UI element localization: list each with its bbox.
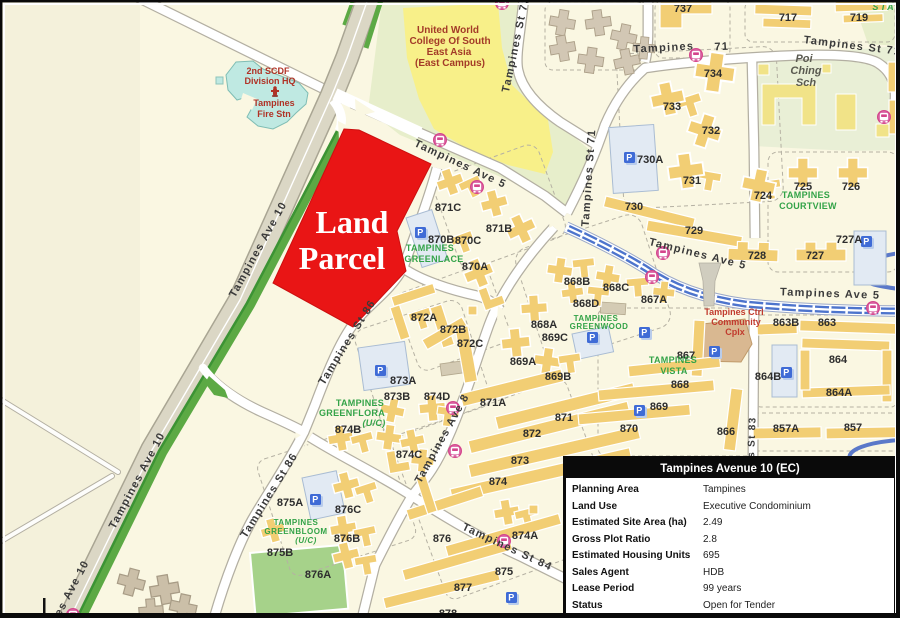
svg-text:Gross Plot Ratio: Gross Plot Ratio [572, 534, 650, 545]
svg-text:P: P [636, 406, 642, 416]
svg-text:Sch: Sch [796, 77, 816, 89]
svg-text:COURTVIEW: COURTVIEW [779, 201, 837, 211]
svg-text:Tampines Avenue 10 (EC): Tampines Avenue 10 (EC) [660, 463, 800, 475]
svg-text:874A: 874A [512, 530, 538, 542]
svg-text:(East Campus): (East Campus) [415, 58, 485, 69]
svg-text:868C: 868C [603, 282, 629, 294]
svg-text:Fire Stn: Fire Stn [257, 109, 291, 119]
svg-text:872C: 872C [457, 338, 483, 350]
svg-text:United World: United World [417, 25, 479, 36]
svg-text:876: 876 [433, 533, 451, 545]
svg-text:GREENWOOD: GREENWOOD [570, 322, 629, 331]
svg-text:P: P [312, 495, 318, 505]
svg-text:866: 866 [717, 426, 735, 438]
svg-text:P: P [641, 328, 647, 338]
svg-text:870C: 870C [455, 235, 481, 247]
svg-text:727A: 727A [836, 234, 862, 246]
svg-text:869: 869 [650, 401, 668, 413]
svg-text:TAMPINES: TAMPINES [274, 518, 319, 527]
svg-text:728: 728 [748, 250, 766, 262]
svg-text:734: 734 [704, 68, 723, 80]
svg-text:Land Use: Land Use [572, 501, 617, 512]
svg-text:869C: 869C [542, 332, 568, 344]
svg-text:P: P [589, 333, 595, 343]
svg-text:Parcel: Parcel [299, 240, 386, 276]
svg-text:874D: 874D [424, 391, 450, 403]
svg-text:P: P [626, 153, 632, 163]
svg-text:P: P [783, 368, 789, 378]
svg-text:729: 729 [685, 225, 703, 237]
svg-text:870: 870 [620, 423, 638, 435]
svg-text:Lease Period: Lease Period [572, 583, 634, 594]
svg-text:873B: 873B [384, 391, 410, 403]
svg-text:875B: 875B [267, 547, 293, 559]
svg-text:857: 857 [844, 422, 862, 434]
svg-text:867A: 867A [641, 294, 667, 306]
svg-text:874C: 874C [396, 449, 422, 461]
svg-text:726: 726 [842, 181, 860, 193]
svg-text:727: 727 [806, 250, 824, 262]
svg-text:875A: 875A [277, 497, 303, 509]
svg-text:731: 731 [683, 175, 701, 187]
svg-text:695: 695 [703, 550, 720, 561]
svg-text:2.8: 2.8 [703, 534, 717, 545]
svg-text:864A: 864A [826, 387, 852, 399]
svg-text:871C: 871C [435, 202, 461, 214]
svg-text:GREENFLORA: GREENFLORA [319, 408, 385, 418]
svg-text:Planning Area: Planning Area [572, 484, 639, 495]
svg-text:717: 717 [779, 12, 797, 24]
svg-text:2nd SCDF: 2nd SCDF [246, 66, 290, 76]
svg-text:724: 724 [754, 190, 773, 202]
svg-text:Cplx: Cplx [725, 327, 745, 337]
svg-text:857A: 857A [773, 423, 799, 435]
svg-text:TAMPINES: TAMPINES [649, 355, 697, 365]
svg-text:Sales Agent: Sales Agent [572, 567, 630, 578]
svg-text:871: 871 [555, 412, 573, 424]
svg-text:869A: 869A [510, 356, 536, 368]
svg-text:864B: 864B [755, 371, 781, 383]
svg-text:874B: 874B [335, 424, 361, 436]
svg-text:871B: 871B [486, 223, 512, 235]
svg-text:TAMPINES: TAMPINES [336, 398, 384, 408]
svg-text:Division HQ: Division HQ [244, 76, 295, 86]
svg-text:733: 733 [663, 101, 681, 113]
svg-text:Estimated Site Area (ha): Estimated Site Area (ha) [572, 517, 687, 528]
svg-text:730: 730 [625, 201, 643, 213]
svg-text:GREENLACE: GREENLACE [404, 254, 463, 264]
svg-text:863B: 863B [773, 317, 799, 329]
svg-text:P: P [863, 237, 869, 247]
svg-text:877: 877 [454, 582, 472, 594]
svg-text:2.49: 2.49 [703, 517, 723, 528]
svg-text:864: 864 [829, 354, 848, 366]
svg-text:868: 868 [671, 379, 689, 391]
svg-text:872A: 872A [411, 312, 437, 324]
svg-text:GREENBLOOM: GREENBLOOM [264, 527, 327, 536]
svg-text:P: P [508, 593, 514, 603]
svg-text:868A: 868A [531, 319, 557, 331]
svg-text:Status: Status [572, 600, 603, 611]
svg-text:873A: 873A [390, 375, 416, 387]
svg-text:874: 874 [489, 476, 508, 488]
svg-text:872B: 872B [440, 324, 466, 336]
svg-text:868B: 868B [564, 276, 590, 288]
svg-text:P: P [711, 347, 717, 357]
svg-text:TAMPINES: TAMPINES [782, 190, 830, 200]
svg-text:College Of South: College Of South [409, 36, 490, 47]
svg-text:(U/C): (U/C) [295, 536, 317, 545]
svg-text:P: P [417, 228, 423, 238]
svg-text:Estimated Housing Units: Estimated Housing Units [572, 550, 691, 561]
svg-text:TAMPINES: TAMPINES [406, 243, 454, 253]
svg-text:Ching: Ching [790, 65, 821, 77]
svg-text:870A: 870A [462, 261, 488, 273]
svg-text:872: 872 [523, 428, 541, 440]
svg-text:71: 71 [714, 41, 729, 54]
svg-text:VISTA: VISTA [660, 366, 688, 376]
svg-text:99 years: 99 years [703, 583, 741, 594]
svg-text:719: 719 [850, 12, 868, 24]
svg-text:Tampines: Tampines [703, 484, 746, 495]
svg-text:HDB: HDB [703, 567, 724, 578]
svg-text:Poi: Poi [795, 53, 813, 65]
svg-text:(U/C): (U/C) [363, 418, 386, 428]
svg-text:P: P [377, 366, 383, 376]
svg-text:Tampines Ctrl: Tampines Ctrl [704, 307, 763, 317]
svg-text:863: 863 [818, 317, 836, 329]
svg-text:Tampines: Tampines [253, 98, 294, 108]
svg-text:871A: 871A [480, 397, 506, 409]
svg-text:875: 875 [495, 566, 513, 578]
svg-text:876C: 876C [335, 504, 361, 516]
svg-text:869B: 869B [545, 371, 571, 383]
svg-text:Land: Land [316, 204, 389, 240]
svg-text:876B: 876B [334, 533, 360, 545]
svg-text:873: 873 [511, 455, 529, 467]
svg-text:730A: 730A [637, 154, 663, 166]
svg-text:868D: 868D [573, 298, 599, 310]
svg-text:Executive Condominium: Executive Condominium [703, 501, 811, 512]
svg-text:732: 732 [702, 125, 720, 137]
svg-text:Open for Tender: Open for Tender [703, 600, 776, 611]
svg-text:East Asia: East Asia [427, 47, 472, 58]
svg-text:876A: 876A [305, 569, 331, 581]
svg-text:Community: Community [711, 317, 761, 327]
